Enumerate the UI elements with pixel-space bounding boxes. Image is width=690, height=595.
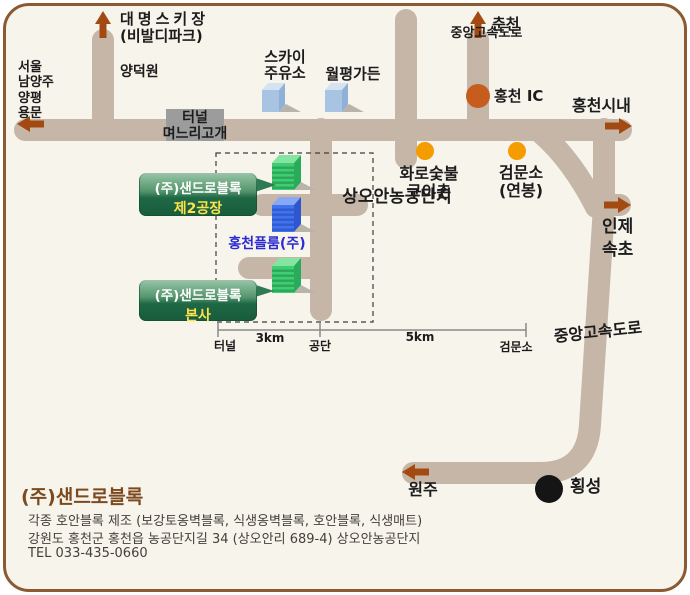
resort-label-line2: (비발디파크) <box>120 28 209 45</box>
footer-company-name: (주)샌드로블록 <box>21 482 143 509</box>
sky-gas-label: 스카이 주유소 <box>264 49 305 81</box>
expressway-north-label: 중앙고속도로 <box>451 27 466 41</box>
sign-hq-company: (주)샌드로블록 <box>139 284 257 304</box>
sokcho-label: 속초 <box>602 239 633 262</box>
scale-distance-5km: 5km <box>406 331 435 345</box>
expressway-south-label: 중앙고속도로 <box>553 326 573 346</box>
checkpoint-label: 검문소 (연봉) <box>499 164 543 200</box>
inje-sokcho-label: 인제 속초 <box>602 216 633 262</box>
footer-tel: TEL 033-435-0660 <box>28 546 148 561</box>
sign-hq: (주)샌드로블록 본사 <box>139 280 257 321</box>
sign-factory2-name: 제2공장 <box>139 198 257 218</box>
resort-label: 대명스키장 (비발디파크) <box>120 11 209 46</box>
hongcheon-ic-label: 홍천 IC <box>494 88 543 105</box>
sign-factory2: (주)샌드로블록 제2공장 <box>139 173 257 216</box>
footer-products: 각종 호안블록 제조 (보강토옹벽블록, 식생옹벽블록, 호안블록, 식생매트) <box>28 510 422 529</box>
tunnel-label-line2: 며느리고개 <box>163 126 227 142</box>
sky-gas-label-line2: 주유소 <box>264 65 305 81</box>
building-wolpyeong-icon <box>325 83 364 112</box>
tunnel-label: 터널 며느리고개 <box>163 110 227 142</box>
wolpyeong-label: 월평가든 <box>325 66 380 83</box>
road-ramp <box>541 133 596 207</box>
yangdeokwon-label: 양덕원 <box>120 65 136 80</box>
dest-yongmun: 용문 <box>18 102 64 121</box>
hongcheon-ic-marker <box>466 84 490 108</box>
inje-label: 인제 <box>602 216 633 239</box>
hoengseong-label: 횡성 <box>570 478 601 498</box>
scale-label-checkpoint: 검문소 <box>499 341 532 355</box>
sign-factory2-company: (주)샌드로블록 <box>139 177 257 197</box>
sign-hq-name: 본사 <box>139 305 257 325</box>
building-sky-gas-icon <box>262 83 301 112</box>
checkpoint-label-line2: (연봉) <box>499 182 543 200</box>
downtown-label: 홍천시내 <box>572 97 631 115</box>
hwaro-marker <box>416 142 434 160</box>
hoengseong-marker <box>535 475 563 503</box>
footer-address: 강원도 홍천군 홍천읍 농공단지길 34 (상오안리 689-4) 상오안농공단… <box>28 528 420 547</box>
complex-zone-label: 상오안농공단지 <box>342 188 362 207</box>
building-factory2-icon <box>272 155 316 190</box>
hwaro-label-line1: 화로숯불 <box>400 165 459 183</box>
tunnel-label-line1: 터널 <box>163 110 227 126</box>
scale-label-complex: 공단 <box>309 340 331 354</box>
checkpoint-marker <box>508 142 526 160</box>
sky-gas-label-line1: 스카이 <box>264 49 305 65</box>
map-page: 대명스키장 (비발디파크) 서울 남양주 양평 용문 양덕원 터널 며느리고개 … <box>0 0 690 595</box>
scale-label-tunnel: 터널 <box>214 340 236 354</box>
wonju-label: 원주 <box>408 481 437 499</box>
checkpoint-label-line1: 검문소 <box>499 164 543 182</box>
scale-distance-3km: 3km <box>256 332 285 346</box>
resort-label-line1: 대명스키장 <box>120 11 209 28</box>
plume-label: 홍천플룸(주) <box>228 236 305 252</box>
